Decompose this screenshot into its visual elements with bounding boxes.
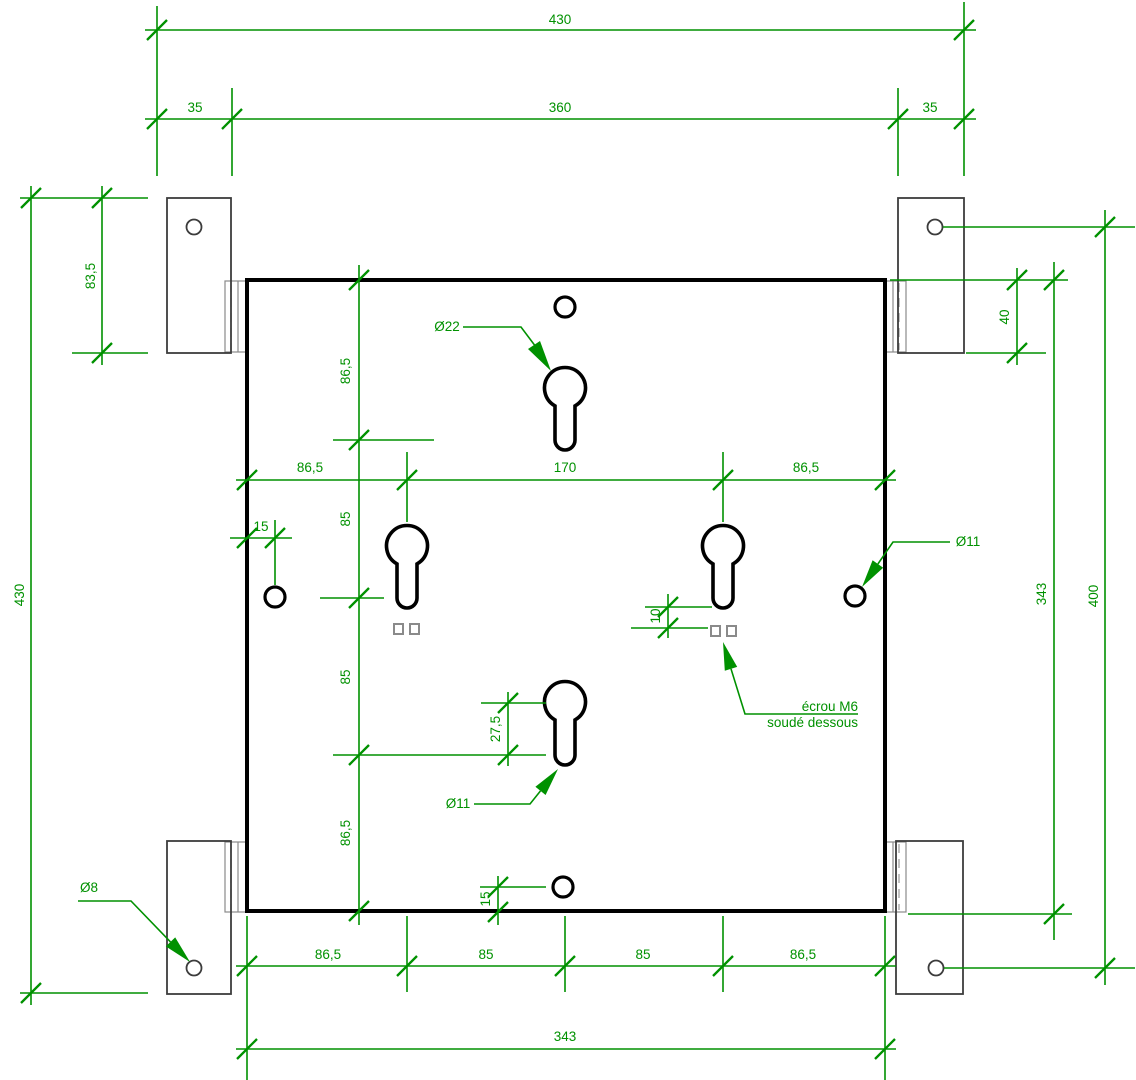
label-keyhole-11: Ø11 [446,796,471,811]
label-weld-note-2: soudé dessous [767,715,858,730]
dim-text-83-5: 83,5 [83,263,98,289]
dim-text-chain-2: 85 [338,511,353,526]
tab-hole-top-right [928,220,943,235]
label-edge-hole-11: Ø11 [956,534,981,549]
tab-hole-bottom-right [929,961,944,976]
dim-text-chain-3: 85 [338,669,353,684]
dim-text-15-bottom: 15 [478,891,493,906]
dim-text-bot-4: 86,5 [790,947,816,962]
hole-top-center [555,297,575,317]
label-keyhole-22: Ø22 [434,319,460,334]
technical-drawing-canvas: 430 35 360 35 430 83,5 40 343 400 86,5 8… [0,0,1136,1080]
dim-text-bot-1: 86,5 [315,947,341,962]
dim-text-35-left: 35 [187,100,202,115]
dim-text-mid-3: 86,5 [793,460,819,475]
dim-text-360: 360 [549,100,572,115]
leader-tab-hole-8 [78,901,171,942]
label-weld-note-1: écrou M6 [802,699,858,714]
dim-text-35-right: 35 [922,100,937,115]
bend-strip-top-left [225,281,246,352]
dim-text-430-left: 430 [12,584,27,607]
dim-text-bot-3: 85 [635,947,650,962]
hole-bottom-center [553,877,573,897]
label-tab-hole-8: Ø8 [80,880,98,895]
dim-text-chain-4: 86,5 [338,820,353,846]
dim-text-mid-1: 86,5 [297,460,323,475]
tab-hole-top-left [187,220,202,235]
dim-text-400: 400 [1086,585,1101,608]
tab-hole-bottom-left [187,961,202,976]
dim-text-chain-1: 86,5 [338,358,353,384]
dim-text-343-right: 343 [1034,583,1049,606]
bend-strip-bottom-left [225,842,246,912]
dim-text-27-5: 27,5 [488,716,503,742]
dim-text-40: 40 [997,309,1012,324]
dim-text-10: 10 [648,608,663,623]
hole-left-edge [265,587,285,607]
dim-text-bot-2: 85 [478,947,493,962]
hole-right-edge [845,586,865,606]
bend-strip-top-right [886,281,906,352]
dim-text-15-left: 15 [253,519,268,534]
dim-text-343-bottom: 343 [554,1029,577,1044]
dim-text-170: 170 [554,460,577,475]
leader-edge-hole-11 [878,542,950,564]
dim-text-430-top: 430 [549,12,572,27]
mounting-plate-drawing: 430 35 360 35 430 83,5 40 343 400 86,5 8… [0,0,1136,1080]
